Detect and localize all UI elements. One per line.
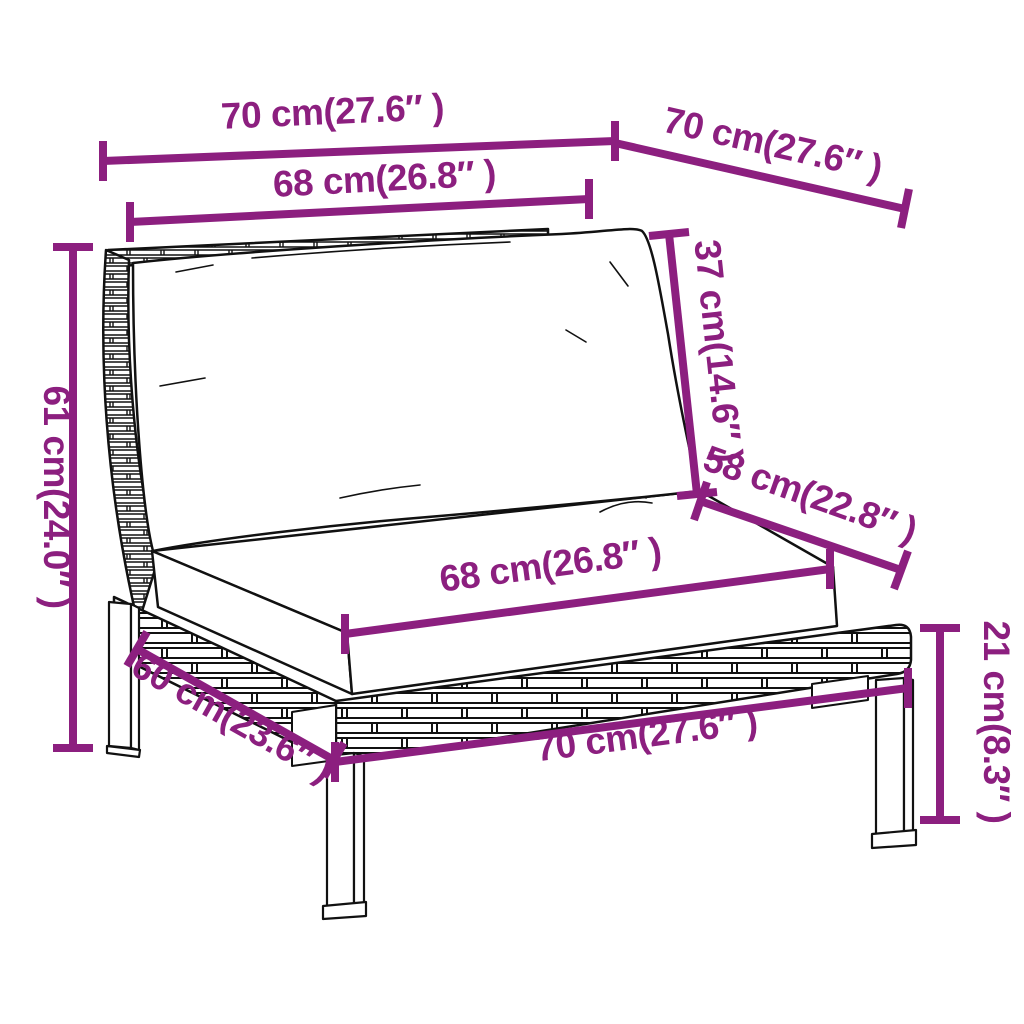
dimension-top-depth: 70 cm(27.6″ ): [615, 99, 909, 228]
dimension-label: 37 cm(14.6″ ): [686, 238, 750, 464]
leg-side-face: [354, 753, 364, 906]
dimension-label: 21 cm(8.3″ ): [976, 621, 1017, 824]
dimension-tick: [649, 232, 689, 236]
leg-foot: [323, 902, 366, 919]
dimension-label: 70 cm(27.6″ ): [220, 86, 445, 137]
dimension-label: 61 cm(24.0″ ): [36, 385, 77, 608]
leg-foot: [872, 830, 916, 848]
dimension-line: [103, 141, 615, 161]
dimension-label: 68 cm(26.8″ ): [272, 152, 497, 205]
sofa-dimension-diagram: 70 cm(27.6″ ) 70 cm(27.6″ ) 68 cm(26.8″ …: [0, 0, 1024, 1024]
leg-front-face: [876, 678, 904, 836]
dimension-diagram-page: 70 cm(27.6″ ) 70 cm(27.6″ ) 68 cm(26.8″ …: [0, 0, 1024, 1024]
dimension-leg-height: 21 cm(8.3″ ): [920, 621, 1017, 824]
dimension-tick: [677, 492, 717, 496]
dimension-tick: [901, 189, 909, 228]
dimension-line: [130, 199, 589, 222]
dimension-back-cushion-width: 68 cm(26.8″ ): [130, 152, 589, 242]
sofa-leg-front: [323, 753, 366, 919]
dimension-overall-height: 61 cm(24.0″ ): [36, 247, 93, 748]
